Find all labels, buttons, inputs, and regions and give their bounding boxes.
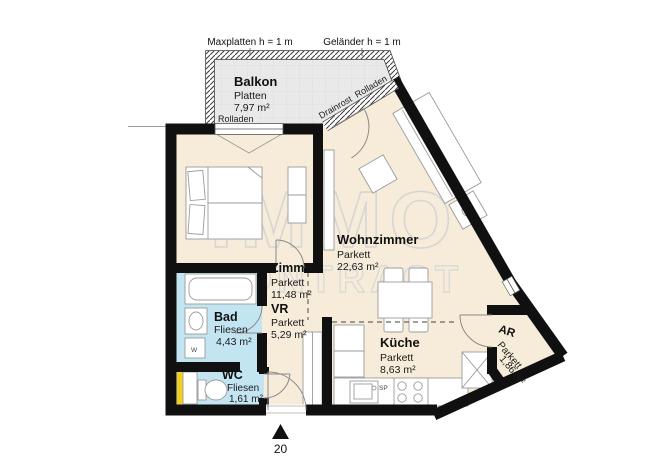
zimmer-floor: Parkett [271, 277, 304, 289]
wohnzimmer-area: 22,63 m² [337, 261, 379, 273]
shelf [324, 150, 334, 250]
wohnzimmer-floor: Parkett [337, 249, 370, 261]
washing-machine: W [185, 338, 205, 358]
vr-floor: Parkett [271, 317, 304, 329]
zimmer-name: Zimmer [271, 261, 316, 275]
kueche-area: 8,63 m² [380, 364, 416, 376]
balcony-floor: Platten [234, 90, 267, 102]
wc-floor: Fliesen [227, 383, 259, 394]
floorplan-page: IMMO CONTRACT [0, 0, 660, 456]
floorplan-canvas: IMMO CONTRACT [0, 0, 660, 456]
vr-area: 5,29 m² [271, 329, 307, 341]
bad-area: 4,43 m² [216, 336, 252, 348]
zimmer-area: 11,48 m² [271, 289, 312, 301]
sink-label: SP [379, 385, 388, 392]
kueche-name: Küche [380, 335, 420, 350]
north-arrow-icon [272, 424, 289, 439]
wc-area: 1,61 m² [229, 394, 264, 405]
shaft-marker-yellow [177, 369, 183, 410]
dim-label-right: Geländer h = 1 m [323, 37, 401, 48]
wohnzimmer-name: Wohnzimmer [337, 232, 418, 247]
wc-name: WC [222, 368, 243, 382]
toilet [198, 380, 227, 400]
balcony-name: Balkon [234, 74, 277, 89]
plan-marker: 20 [272, 424, 289, 456]
entrance-threshold [266, 405, 306, 416]
bad-name: Bad [214, 310, 238, 324]
bathtub [185, 274, 256, 304]
washbasin [185, 308, 207, 334]
stove [394, 378, 428, 406]
kueche-floor: Parkett [380, 352, 413, 364]
bedroom-window [215, 124, 283, 135]
washer-label: W [191, 347, 198, 354]
wc-shaft [183, 372, 197, 404]
bad-floor: Fliesen [214, 324, 248, 336]
vr-name: VR [271, 302, 288, 316]
balcony-area: 7,97 m² [234, 102, 270, 114]
plan-number: 20 [274, 442, 288, 456]
dim-label-left: Maxplatten h = 1 m [207, 37, 292, 48]
bed [186, 167, 262, 239]
rolladen-label: Rolladen [218, 114, 254, 124]
